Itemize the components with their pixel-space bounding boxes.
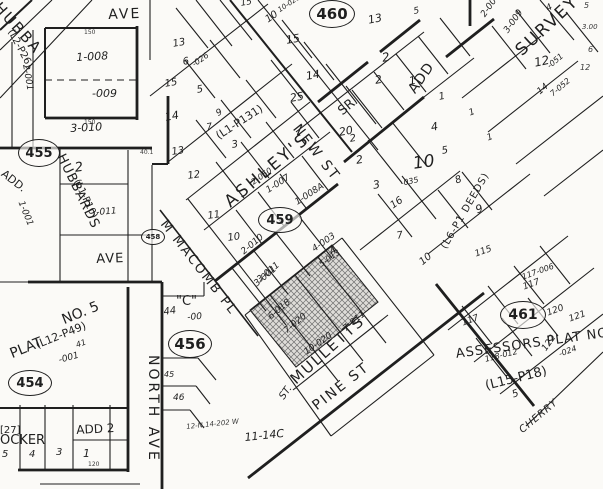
sheet-number-circle-461: 461 xyxy=(500,301,546,329)
sheet-number-circle-458: 458 xyxy=(141,229,165,245)
sheet-circles-layer: 455458459460454456461 xyxy=(0,0,603,489)
sheet-number-circle-460: 460 xyxy=(309,0,355,28)
sheet-number-circle-459: 459 xyxy=(258,207,302,233)
sheet-number-circle-456: 456 xyxy=(168,330,212,358)
sheet-number-circle-455: 455 xyxy=(18,139,60,167)
plat-map-canvas[interactable]: AVEAVENORTH AVEM MACOMB PLNEW STPINE STC… xyxy=(0,0,603,489)
sheet-number-circle-454: 454 xyxy=(8,370,52,396)
